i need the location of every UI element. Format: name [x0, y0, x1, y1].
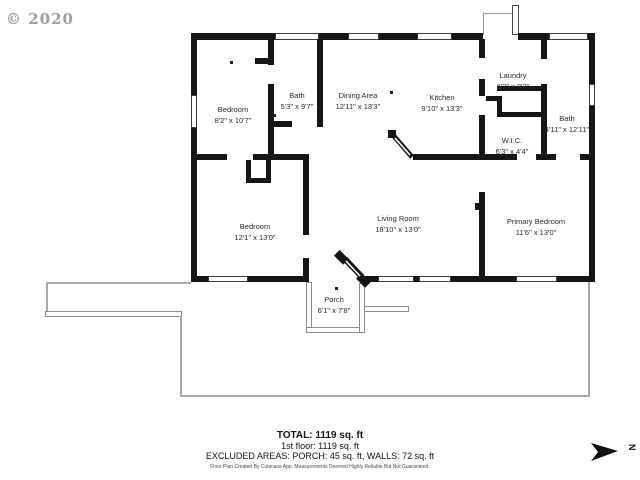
door-dot — [335, 287, 338, 290]
interior-wall — [191, 154, 227, 160]
room-label-bedroom-2: Bedroom12'1" x 13'0" — [234, 221, 275, 243]
interior-wall — [580, 154, 589, 160]
summary-disclaimer: Floor Plan Created By Cubicasa App. Meas… — [0, 464, 640, 470]
room-label-bedroom-1: Bedroom8'2" x 10'7" — [215, 104, 252, 126]
interior-wall — [546, 154, 556, 160]
door-dot — [273, 114, 276, 117]
window — [378, 276, 414, 282]
window — [516, 276, 557, 282]
window — [348, 33, 379, 40]
interior-wall — [502, 112, 546, 117]
deck-outline — [46, 282, 191, 284]
outer-wall — [191, 276, 208, 282]
window — [275, 33, 319, 40]
door-jamb — [475, 203, 479, 210]
kitchen-door-icon — [388, 130, 412, 157]
summary-excluded-areas: EXCLUDED AREAS: PORCH: 45 sq. ft, WALLS:… — [0, 451, 640, 461]
door-dot — [230, 61, 233, 64]
chimney-flue — [512, 5, 519, 35]
interior-wall — [274, 121, 292, 127]
deck-outline — [180, 395, 590, 397]
outer-wall — [557, 276, 595, 282]
outer-wall — [191, 33, 275, 40]
closet-wall — [246, 178, 271, 183]
interior-wall — [479, 192, 485, 282]
window — [589, 84, 595, 106]
summary-total: TOTAL: 1119 sq. ft — [0, 430, 640, 441]
window — [549, 33, 588, 40]
summary-first-floor: 1st floor: 1119 sq. ft — [0, 441, 640, 451]
room-label-porch: Porch6'1" x 7'8" — [318, 294, 351, 316]
deck-railing — [45, 311, 182, 317]
room-label-bath-2: Bath4'11" x 12'11" — [545, 113, 589, 135]
floor-plan: © 2020 — [0, 0, 640, 480]
room-label-laundry: Laundry6'3" x 8'3" — [497, 70, 530, 92]
door-dot — [390, 91, 393, 94]
outer-wall — [248, 276, 307, 282]
outer-wall — [365, 276, 378, 282]
copyright-watermark: © 2020 — [6, 10, 74, 28]
window — [208, 276, 248, 282]
interior-wall — [255, 58, 274, 64]
interior-wall — [317, 39, 323, 127]
interior-wall — [479, 79, 485, 96]
room-label-living-room: Living Room18'10" x 13'0" — [375, 213, 420, 235]
window — [191, 95, 197, 128]
room-label-primary-bedroom: Primary Bedroom11'6" x 13'0" — [507, 216, 565, 238]
deck-outline — [588, 282, 590, 397]
outer-wall — [379, 33, 417, 40]
interior-wall — [303, 258, 309, 282]
room-label-wic: W.I.C.6'3" x 4'4" — [496, 135, 529, 157]
front-door-icon — [334, 250, 371, 288]
window — [417, 33, 452, 40]
room-label-bath-1: Bath5'3" x 9'7" — [281, 90, 314, 112]
outer-wall — [589, 33, 595, 282]
porch-wall — [306, 327, 365, 333]
outer-wall — [319, 33, 348, 40]
window — [419, 276, 451, 282]
porch-wall — [306, 282, 312, 332]
deck-outline — [180, 315, 182, 397]
room-label-kitchen: Kitchen9'10" x 13'3" — [421, 92, 462, 114]
interior-wall — [253, 154, 309, 160]
interior-wall — [541, 39, 547, 59]
interior-wall — [413, 154, 484, 160]
room-label-dining-area: Dining Area12'11" x 13'3" — [336, 90, 381, 112]
interior-wall — [303, 154, 309, 235]
interior-wall — [536, 154, 546, 160]
interior-wall — [479, 39, 485, 58]
porch-railing — [364, 306, 409, 312]
